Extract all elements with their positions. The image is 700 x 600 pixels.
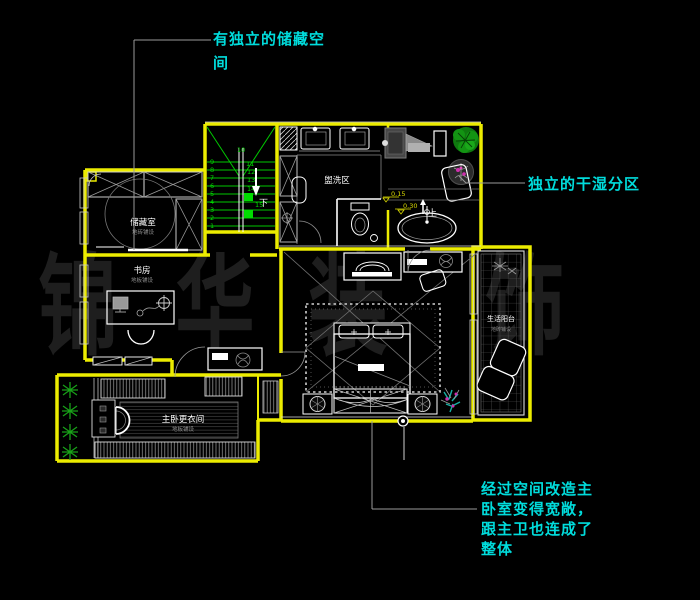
dresser	[344, 253, 401, 280]
stair-number: 4	[210, 198, 214, 206]
wardrobe-top-left	[101, 379, 165, 398]
potted-plant-dark	[449, 160, 474, 185]
washing-machine-knob	[382, 140, 388, 146]
sideboard	[208, 348, 262, 370]
annotation-master-line4: 整体	[481, 540, 513, 558]
annotation-master-line3: 跟主卫也连成了	[481, 520, 593, 538]
stair-number: 5	[210, 190, 214, 198]
annotation-master-line2: 卧室变得宽敞，	[481, 500, 593, 518]
stair-number: 3	[210, 206, 214, 214]
annotation-storage-line2: 间	[213, 54, 229, 72]
stair-number: 6	[210, 182, 214, 190]
stair-number: 9	[210, 158, 214, 166]
stair-down-label: 下	[259, 199, 268, 209]
wall-target-symbol	[398, 416, 408, 426]
potted-plant-green	[453, 127, 479, 153]
stair-number: 7	[210, 174, 214, 182]
closet-label: 主卧更衣间	[162, 414, 205, 425]
stair-number-top: 10	[237, 146, 245, 154]
storage-room-sublabel: 地砖铺设	[132, 228, 155, 236]
level-value-1: 0.15	[391, 190, 405, 198]
stair-number: 13	[247, 176, 255, 184]
stair-number: 12	[247, 168, 255, 176]
vanity-cabinet	[404, 252, 462, 272]
study-sublabel: 地板铺设	[131, 276, 154, 284]
washing-machine-drum	[388, 132, 403, 154]
stair-number: 1	[210, 222, 214, 230]
stair-marker-square-1	[244, 193, 253, 201]
stair-number: 8	[210, 166, 214, 174]
annotation-master-line1: 经过空间改造主	[481, 480, 593, 498]
duct-hatch-box	[280, 127, 297, 150]
stair-number: 11	[246, 160, 254, 168]
vanity-unit	[92, 400, 115, 437]
cad-floorplan-screenshot: 锦 华 装 饰 10 9 8 7	[0, 0, 700, 600]
floorplan-canvas: 锦 华 装 饰 10 9 8 7	[0, 0, 700, 600]
shoe-nook-cabinet	[263, 381, 278, 413]
annotation-storage-line1: 有独立的储藏空	[213, 30, 325, 48]
computer-icon	[113, 297, 128, 309]
stair-marker-square-2	[244, 210, 253, 218]
bed-blanket-fold	[358, 364, 384, 371]
nightstand-right	[408, 394, 437, 414]
wardrobe-top-right	[205, 377, 242, 396]
annotation-drywet: 独立的干湿分区	[528, 175, 640, 193]
counter-bar	[408, 143, 430, 152]
closet-sublabel: 地板铺设	[172, 425, 195, 433]
nightstand-left	[303, 394, 332, 414]
stair-number: 2	[210, 214, 214, 222]
level-value-2: 0.30	[403, 202, 417, 210]
washing-area-label: 盥洗区	[324, 175, 350, 186]
study-label: 书房	[133, 265, 150, 276]
balcony-label: 生活阳台	[487, 314, 515, 323]
wardrobe-bottom	[95, 442, 255, 458]
balcony-sublabel: 地砖铺设	[491, 326, 511, 333]
watermark-char-1: 锦	[38, 242, 117, 372]
